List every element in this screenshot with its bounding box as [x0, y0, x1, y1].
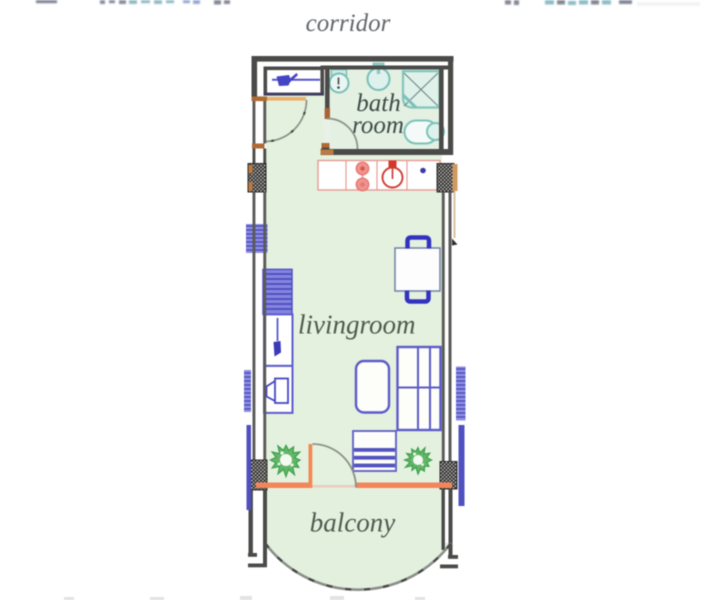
svg-text:room: room	[352, 112, 404, 139]
svg-text:livingroom: livingroom	[298, 310, 416, 340]
svg-text:balcony: balcony	[310, 508, 395, 538]
svg-text:corridor: corridor	[306, 10, 391, 37]
